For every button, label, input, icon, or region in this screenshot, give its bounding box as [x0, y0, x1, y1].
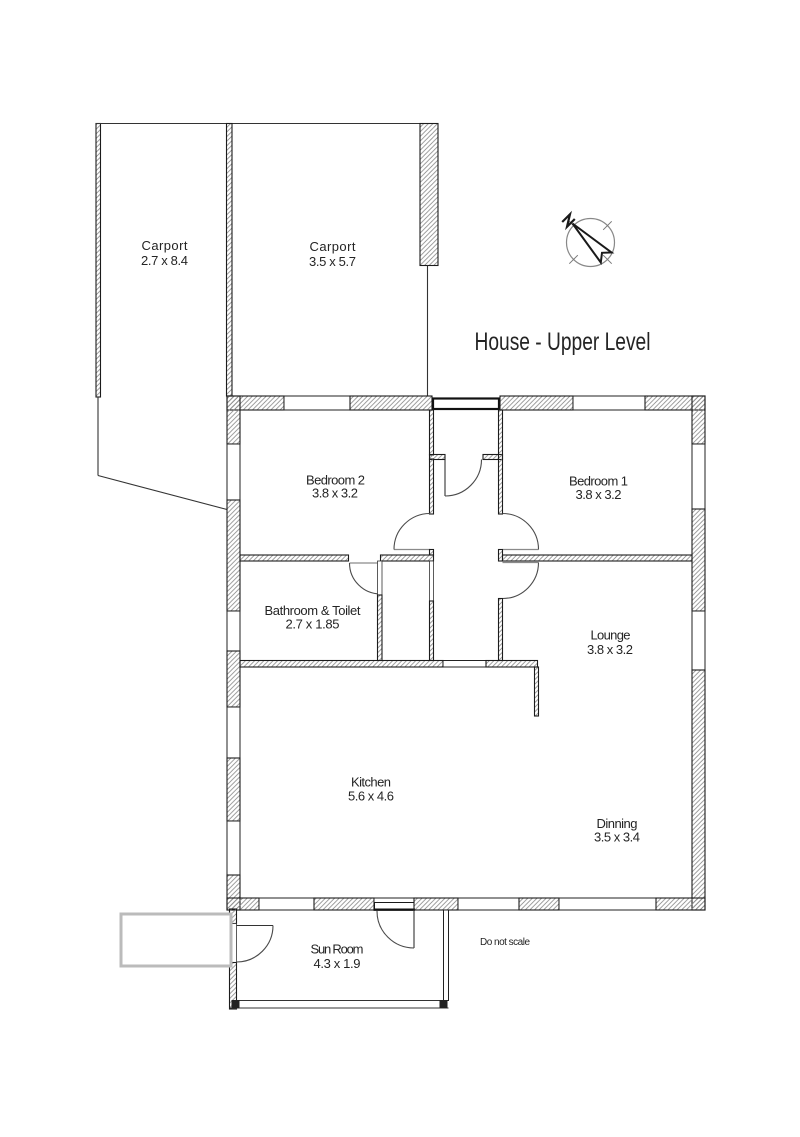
svg-text:3.8 x 3.2: 3.8 x 3.2 — [587, 642, 633, 657]
svg-text:3.5 x 3.4: 3.5 x 3.4 — [594, 830, 640, 845]
svg-text:Carport: Carport — [310, 239, 356, 254]
svg-text:3.8 x 3.2: 3.8 x 3.2 — [576, 487, 622, 502]
svg-text:4.3 x 1.9: 4.3 x 1.9 — [314, 956, 361, 971]
svg-text:Kitchen: Kitchen — [351, 775, 391, 790]
svg-text:2.7 x 8.4: 2.7 x 8.4 — [141, 253, 188, 268]
svg-text:3.8 x 3.2: 3.8 x 3.2 — [312, 486, 358, 501]
svg-text:3.5 x 5.7: 3.5 x 5.7 — [309, 254, 356, 269]
svg-text:House - Upper Level: House - Upper Level — [475, 328, 651, 356]
svg-text:Sun Room: Sun Room — [311, 942, 364, 957]
svg-text:5.6 x 4.6: 5.6 x 4.6 — [348, 789, 394, 804]
svg-text:2.7 x 1.85: 2.7 x 1.85 — [286, 617, 340, 632]
svg-text:Carport: Carport — [142, 238, 188, 253]
svg-text:Do not scale: Do not scale — [480, 937, 530, 948]
svg-text:Lounge: Lounge — [591, 628, 631, 643]
